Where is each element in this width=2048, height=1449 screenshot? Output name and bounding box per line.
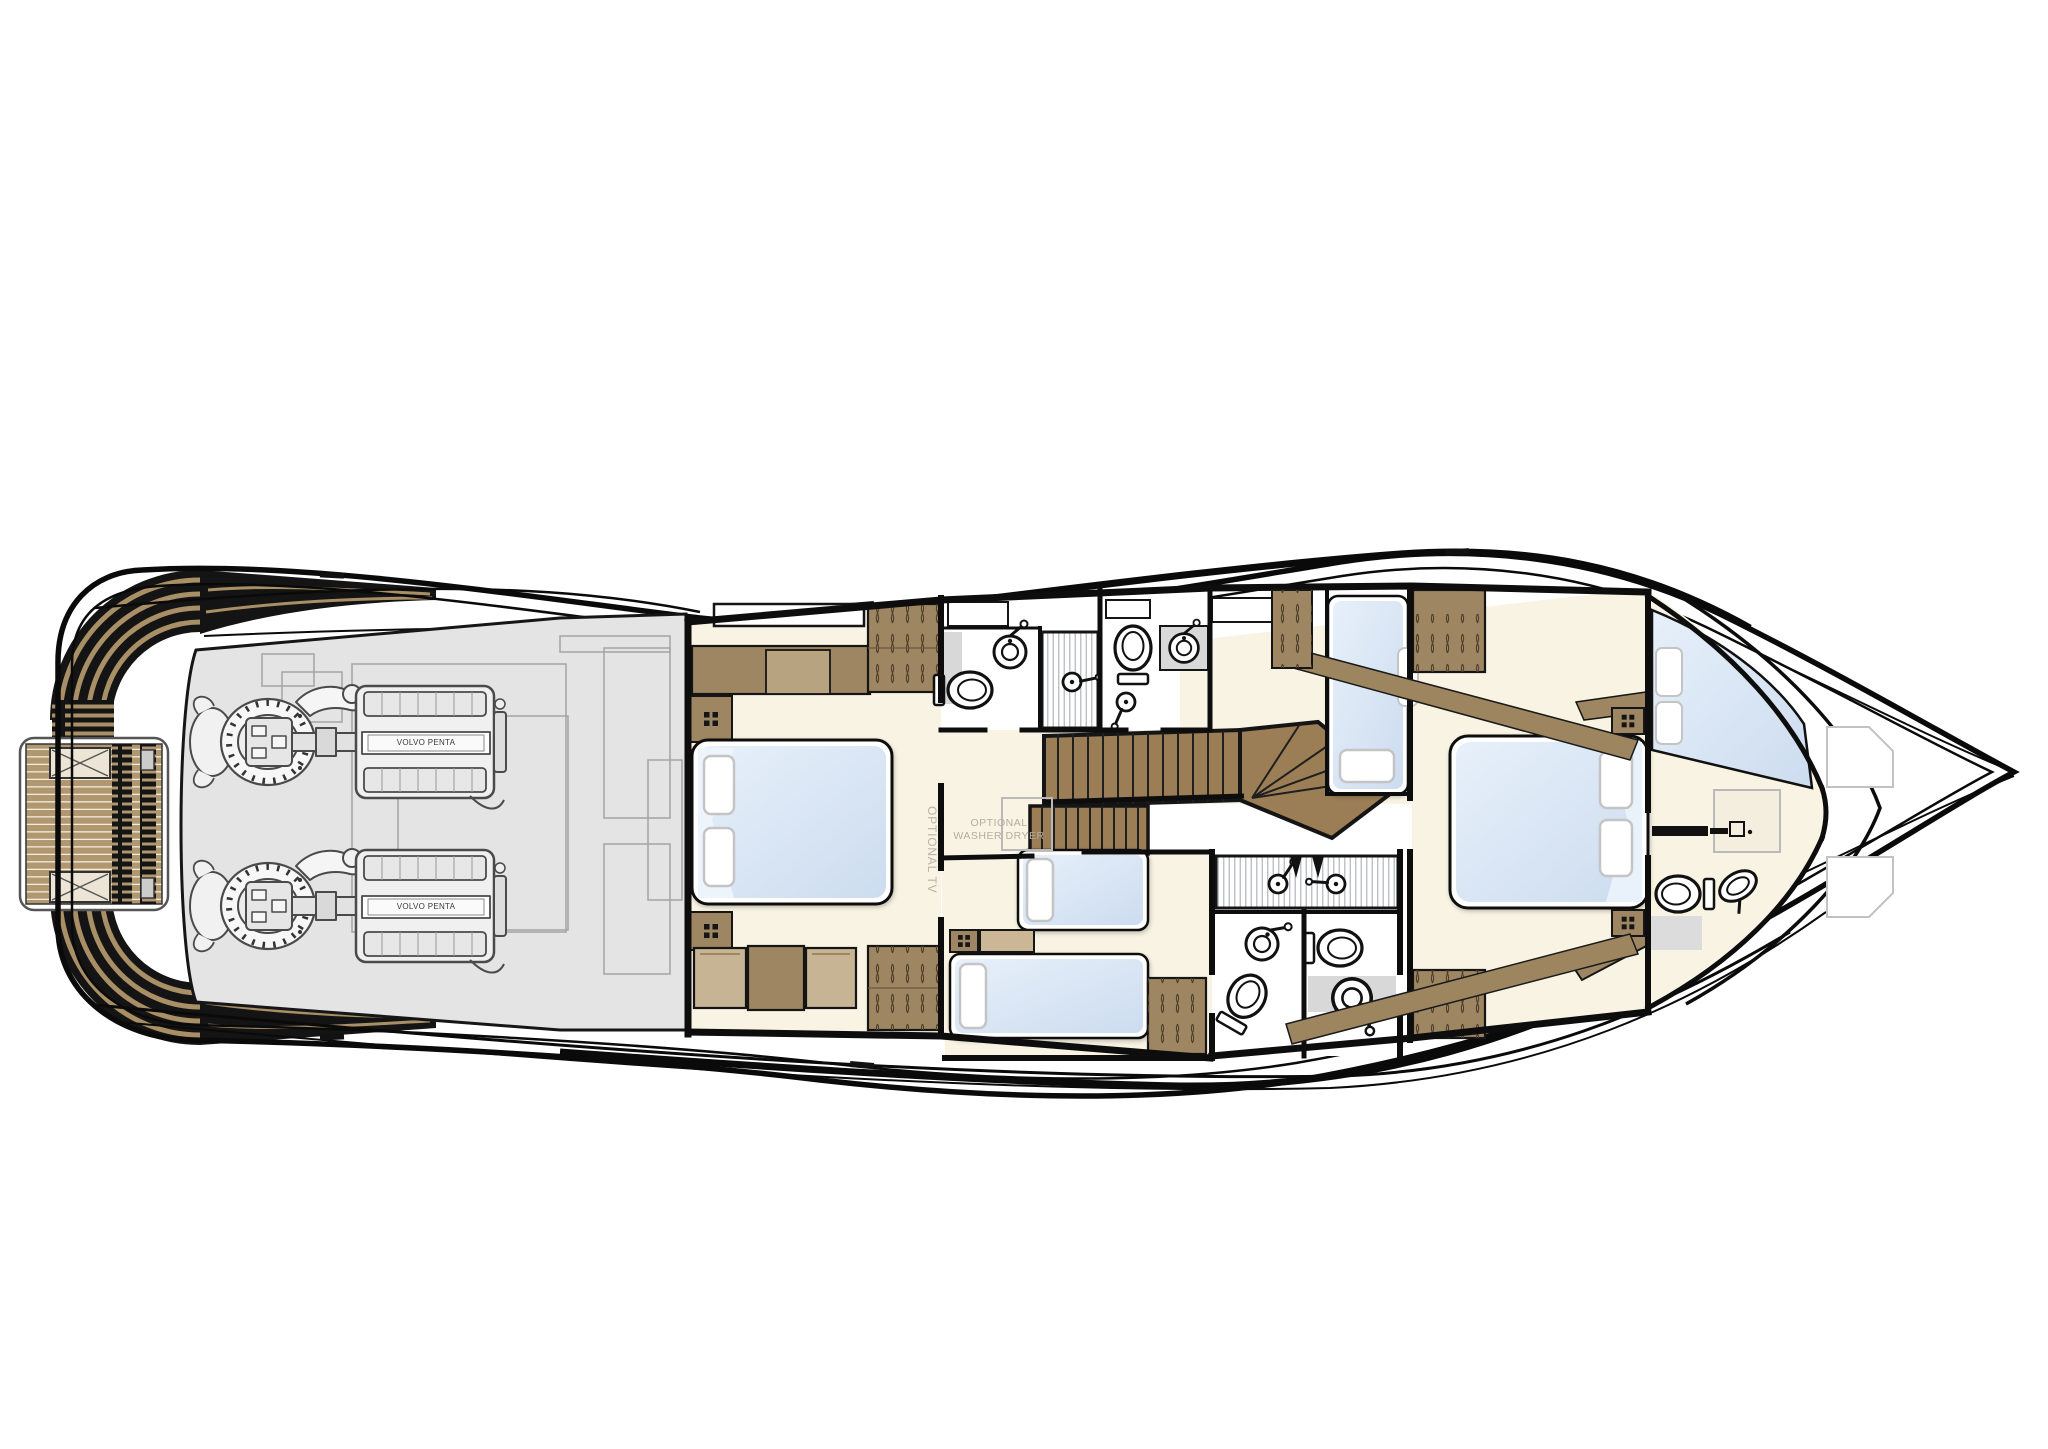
twin-counter xyxy=(980,930,1034,952)
master-sofa xyxy=(694,946,856,1010)
optional-tv-label: OPTIONAL TV xyxy=(925,806,939,894)
nightstand xyxy=(950,930,978,952)
bow-hatch-panel xyxy=(1714,790,1780,852)
master-wardrobe-fwd xyxy=(868,946,940,1030)
pillow xyxy=(704,756,734,814)
pillow xyxy=(1340,750,1394,782)
deck-locker xyxy=(1272,590,1312,668)
master-bed xyxy=(692,740,892,904)
bow-shower-pan xyxy=(1650,916,1702,950)
swim-platform xyxy=(20,738,168,910)
pillow xyxy=(960,964,986,1028)
master-wardrobe-aft xyxy=(868,604,940,692)
nightstand xyxy=(1612,708,1644,734)
vip-bed xyxy=(1450,736,1648,908)
pillow xyxy=(1656,648,1682,696)
washer-dryer-label-line1: OPTIONAL xyxy=(970,817,1027,829)
pillow xyxy=(704,828,734,886)
pillow xyxy=(1600,820,1632,876)
pillow xyxy=(1027,859,1053,921)
engine-room: VOLVO PENTA VOLVO PENTA xyxy=(181,614,686,1030)
foredeck-hatch xyxy=(1827,857,1893,917)
toilet-icon xyxy=(1656,876,1714,912)
nightstand xyxy=(690,912,732,950)
engine-label-starboard: VOLVO PENTA xyxy=(397,902,456,911)
washer-dryer-label-line2: WASHER DRYER xyxy=(953,830,1044,842)
pillow xyxy=(1600,752,1632,808)
shower-aft xyxy=(1042,632,1102,728)
nightstand xyxy=(1612,910,1644,936)
toilet-icon xyxy=(1304,930,1362,966)
floor-plan-canvas: VOLVO PENTA VOLVO PENTA xyxy=(0,0,2048,1449)
vip-wardrobe-top xyxy=(1413,590,1485,672)
toilet-icon xyxy=(1115,626,1151,684)
twin-bed-upper xyxy=(1018,850,1148,930)
yacht-floor-plan: VOLVO PENTA VOLVO PENTA xyxy=(0,0,2048,1449)
nightstand xyxy=(690,696,732,742)
twin-wardrobe xyxy=(1148,978,1206,1054)
twin-bed-lower xyxy=(950,954,1148,1038)
pillow xyxy=(1656,702,1682,744)
engine-label-port: VOLVO PENTA xyxy=(397,738,456,747)
